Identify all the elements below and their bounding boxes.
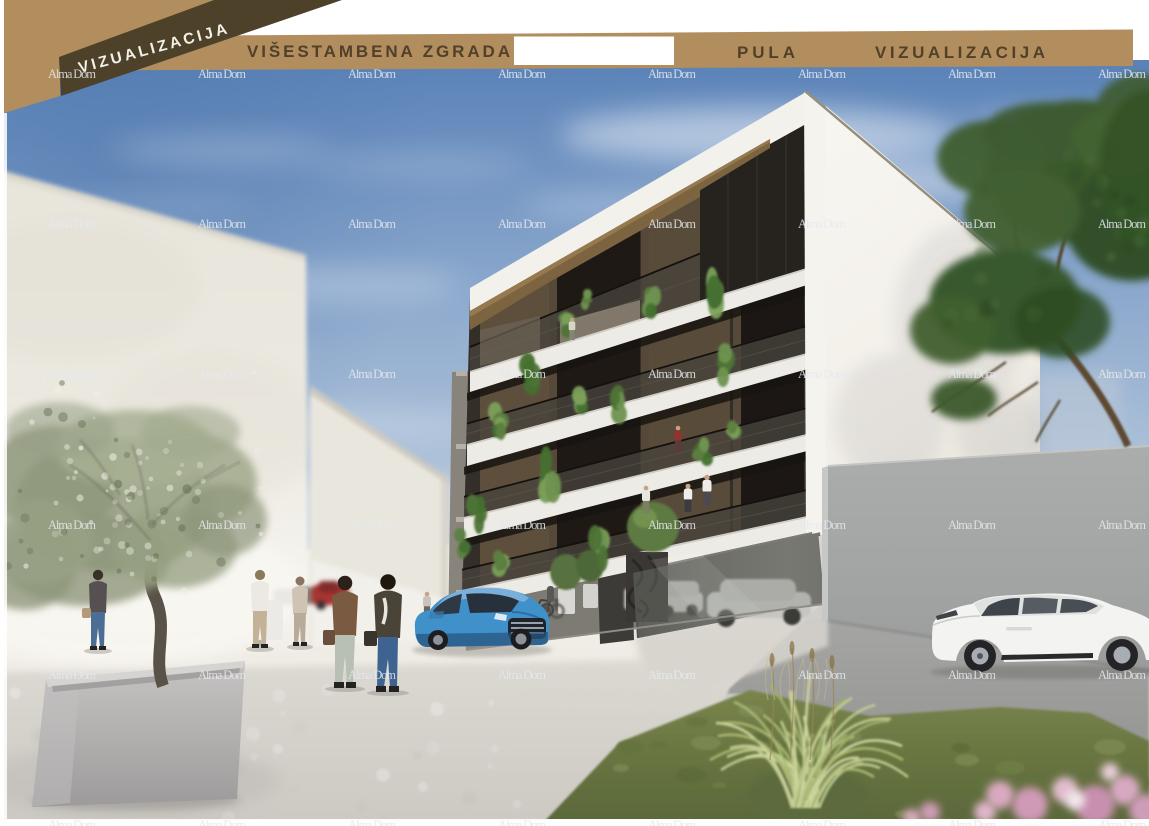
svg-text:Alma Dom: Alma Dom: [798, 67, 846, 81]
svg-text:Alma Dom: Alma Dom: [48, 367, 96, 381]
svg-text:Alma Dom: Alma Dom: [198, 818, 246, 826]
svg-text:Alma Dom: Alma Dom: [798, 518, 846, 532]
svg-text:Alma Dom: Alma Dom: [648, 67, 696, 81]
svg-text:Alma Dom: Alma Dom: [498, 67, 546, 81]
svg-text:Alma Dom: Alma Dom: [498, 518, 546, 532]
svg-text:Alma Dom: Alma Dom: [348, 67, 396, 81]
svg-text:Alma Dom: Alma Dom: [498, 818, 546, 826]
svg-text:Alma Dom: Alma Dom: [648, 668, 696, 682]
svg-text:Alma Dom: Alma Dom: [48, 217, 96, 231]
svg-text:Alma Dom: Alma Dom: [948, 668, 996, 682]
svg-text:Alma Dom: Alma Dom: [648, 518, 696, 532]
svg-text:Alma Dom: Alma Dom: [648, 367, 696, 381]
svg-text:Alma Dom: Alma Dom: [948, 518, 996, 532]
svg-text:Alma Dom: Alma Dom: [498, 668, 546, 682]
svg-text:Alma Dom: Alma Dom: [198, 367, 246, 381]
svg-text:Alma Dom: Alma Dom: [198, 217, 246, 231]
svg-text:Alma Dom: Alma Dom: [198, 668, 246, 682]
svg-text:Alma Dom: Alma Dom: [648, 818, 696, 826]
svg-text:Alma Dom: Alma Dom: [48, 518, 96, 532]
svg-text:Alma Dom: Alma Dom: [48, 818, 96, 826]
svg-text:Alma Dom: Alma Dom: [798, 668, 846, 682]
svg-text:Alma Dom: Alma Dom: [798, 367, 846, 381]
svg-text:Alma Dom: Alma Dom: [948, 367, 996, 381]
svg-text:Alma Dom: Alma Dom: [348, 668, 396, 682]
svg-text:Alma Dom: Alma Dom: [348, 818, 396, 826]
svg-text:Alma Dom: Alma Dom: [1098, 518, 1146, 532]
svg-text:Alma Dom: Alma Dom: [198, 518, 246, 532]
svg-text:Alma Dom: Alma Dom: [48, 668, 96, 682]
svg-text:Alma Dom: Alma Dom: [948, 67, 996, 81]
svg-text:Alma Dom: Alma Dom: [1098, 367, 1146, 381]
svg-text:Alma Dom: Alma Dom: [1098, 668, 1146, 682]
svg-text:Alma Dom: Alma Dom: [348, 518, 396, 532]
svg-text:Alma Dom: Alma Dom: [1098, 818, 1146, 826]
svg-text:Alma Dom: Alma Dom: [198, 67, 246, 81]
svg-text:Alma Dom: Alma Dom: [948, 818, 996, 826]
svg-text:VIZUALIZACIJA: VIZUALIZACIJA: [875, 43, 1045, 62]
svg-text:Alma Dom: Alma Dom: [48, 67, 96, 81]
svg-text:Alma Dom: Alma Dom: [348, 367, 396, 381]
svg-text:Alma Dom: Alma Dom: [798, 818, 846, 826]
svg-text:Alma Dom: Alma Dom: [1098, 217, 1146, 231]
svg-text:Alma Dom: Alma Dom: [498, 367, 546, 381]
svg-text:Alma Dom: Alma Dom: [498, 217, 546, 231]
svg-text:Alma Dom: Alma Dom: [1098, 67, 1146, 81]
svg-text:VIŠESTAMBENA ZGRADA: VIŠESTAMBENA ZGRADA: [247, 42, 510, 61]
svg-text:Alma Dom: Alma Dom: [348, 217, 396, 231]
svg-text:Alma Dom: Alma Dom: [948, 217, 996, 231]
svg-text:Alma Dom: Alma Dom: [648, 217, 696, 231]
svg-text:Alma Dom: Alma Dom: [798, 217, 846, 231]
